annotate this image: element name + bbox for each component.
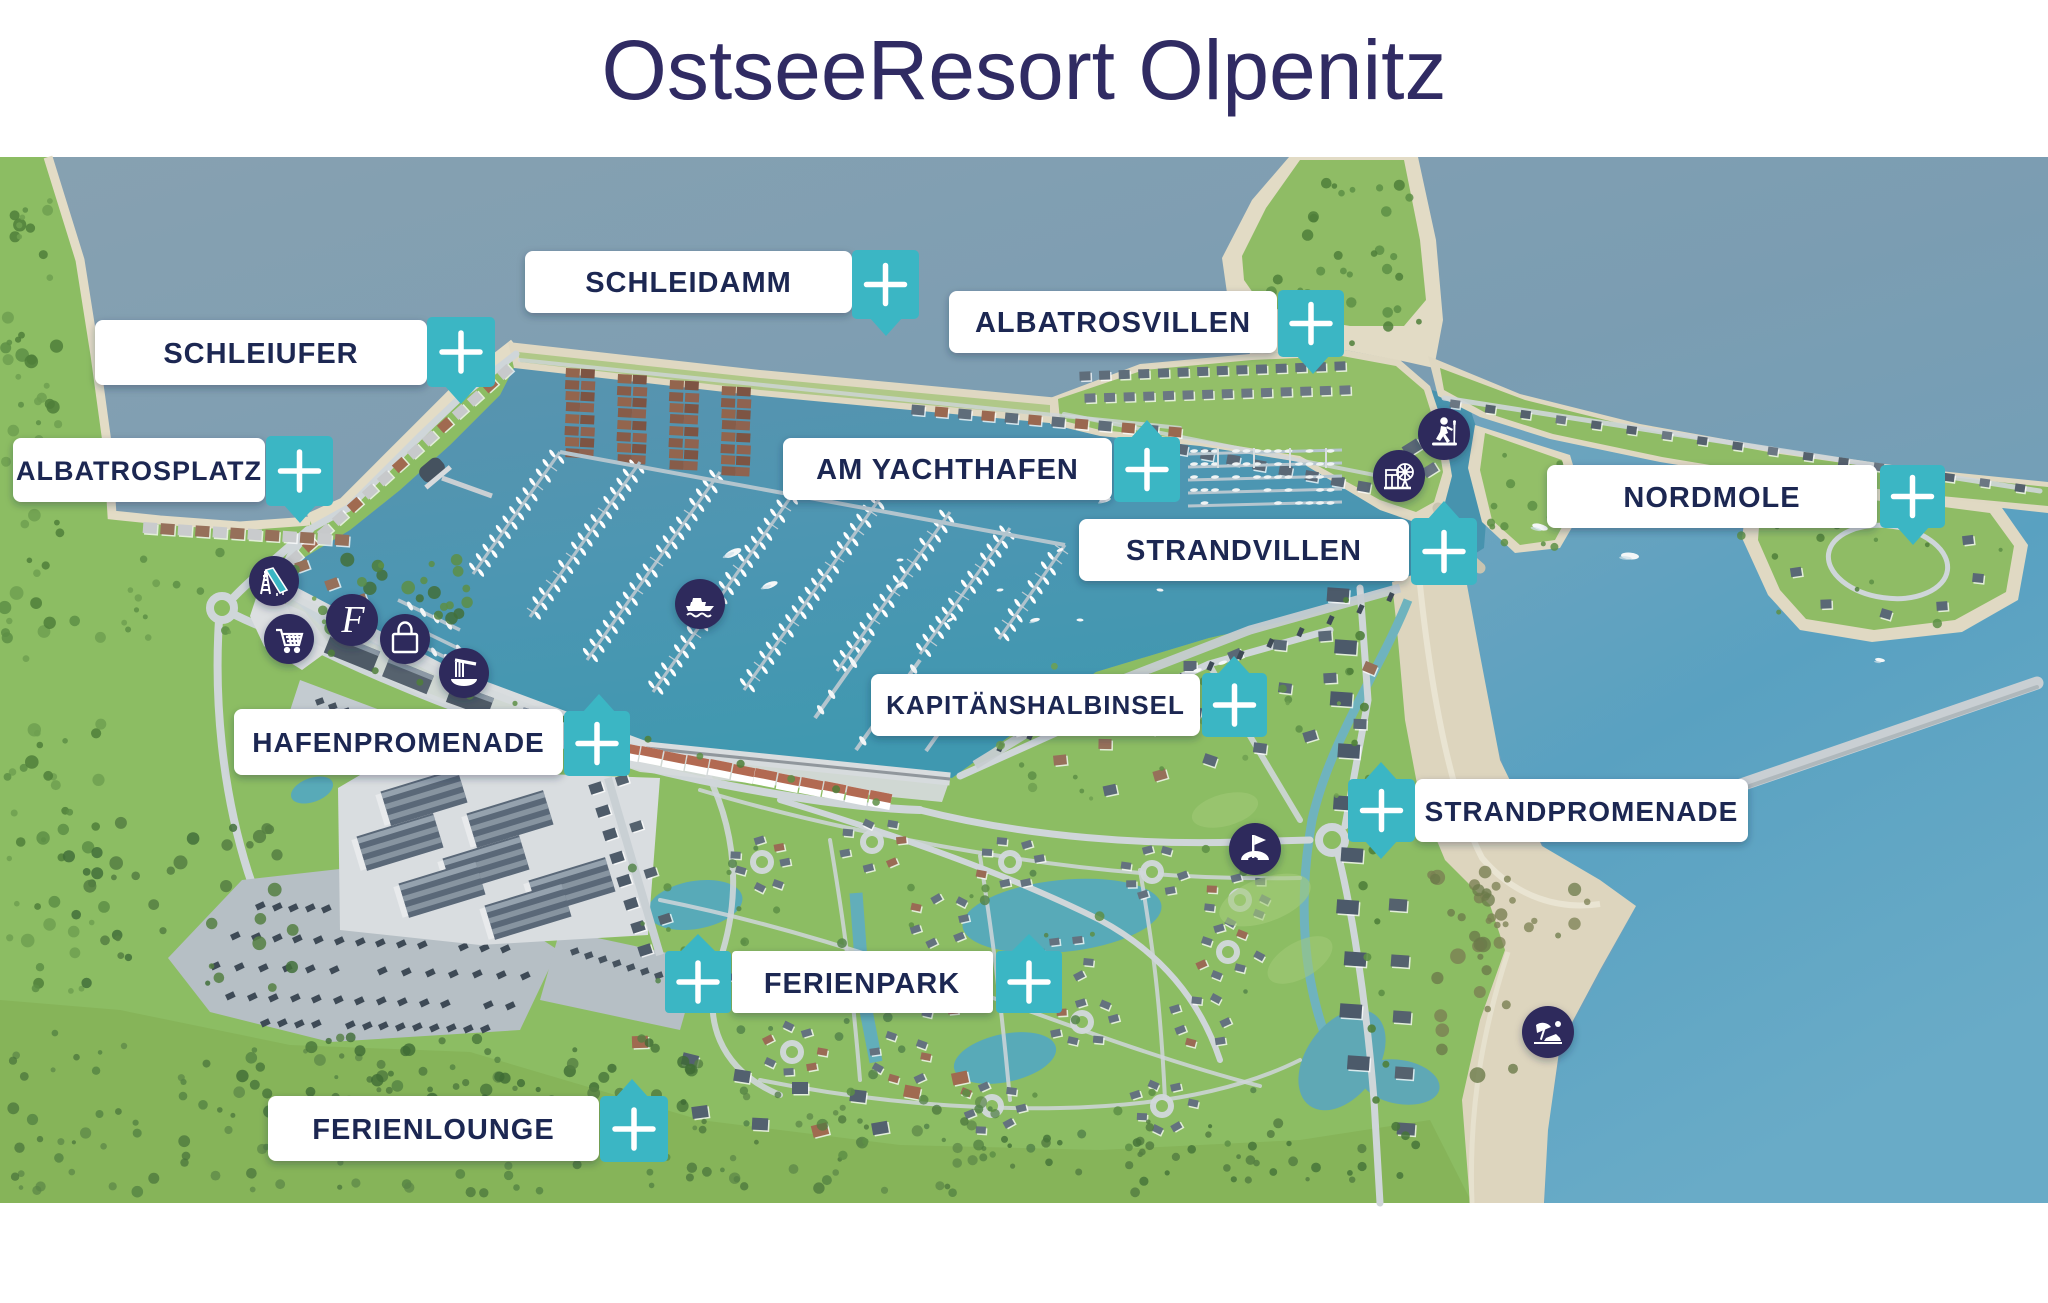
svg-text:FERIENPARK: FERIENPARK [764, 968, 960, 1000]
svg-text:OstseeResort Olpenitz: OstseeResort Olpenitz [601, 23, 1446, 117]
svg-text:FERIENLOUNGE: FERIENLOUNGE [312, 1114, 554, 1146]
svg-text:STRANDPROMENADE: STRANDPROMENADE [1425, 796, 1739, 827]
svg-text:ALBATROSVILLEN: ALBATROSVILLEN [975, 307, 1251, 339]
svg-text:HAFENPROMENADE: HAFENPROMENADE [252, 727, 544, 758]
svg-text:ALBATROSPLATZ: ALBATROSPLATZ [16, 456, 262, 486]
svg-text:NORDMOLE: NORDMOLE [1623, 482, 1800, 514]
svg-text:AM YACHTHAFEN: AM YACHTHAFEN [816, 454, 1079, 486]
svg-text:SCHLEIUFER: SCHLEIUFER [163, 338, 358, 370]
svg-text:STRANDVILLEN: STRANDVILLEN [1126, 535, 1362, 567]
svg-text:F: F [340, 599, 365, 641]
svg-text:SCHLEIDAMM: SCHLEIDAMM [585, 267, 792, 299]
svg-text:KAPITÄNSHALBINSEL: KAPITÄNSHALBINSEL [886, 690, 1185, 720]
